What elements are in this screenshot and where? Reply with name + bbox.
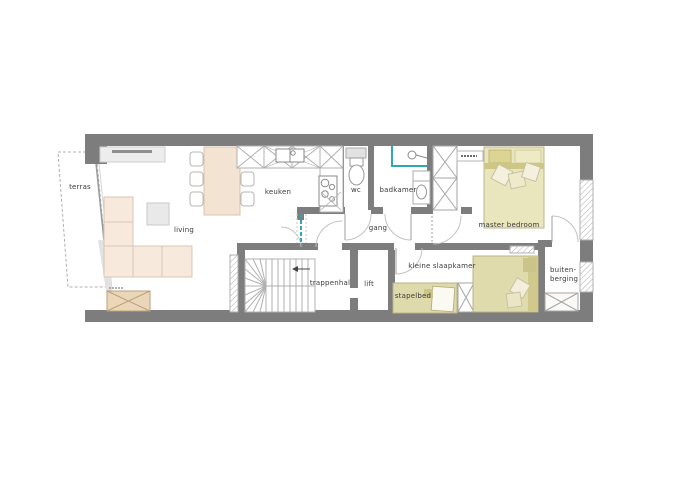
- pillow: [489, 150, 511, 163]
- room-label-buiten-berging: buiten- berging: [550, 266, 578, 285]
- door-trappenhal: [316, 221, 342, 247]
- coffee-table: [147, 203, 169, 225]
- crossed-cabinet: [107, 288, 150, 311]
- staircase: [245, 259, 315, 312]
- door-wc: [345, 214, 371, 240]
- pillow: [515, 150, 541, 163]
- room-label-buiten-berging-line1: buiten-: [550, 266, 578, 275]
- floorplan-drawing: [0, 0, 700, 500]
- wall-right-3: [580, 292, 593, 312]
- toilet-icon: [349, 165, 364, 185]
- room-label-living: living: [174, 226, 194, 234]
- tv: [112, 150, 152, 153]
- stove-icon: [319, 176, 337, 206]
- bathroom-fixtures: [392, 146, 430, 204]
- door-berging: [552, 216, 578, 242]
- radiator-small-bedroom: [510, 246, 534, 253]
- door-badkamer: [385, 214, 411, 240]
- room-label-buiten-berging-line2: berging: [550, 275, 578, 284]
- door-kleine-slaapkamer: [396, 248, 422, 274]
- shower-head-icon: [408, 151, 416, 159]
- room-label-lift: lift: [364, 280, 374, 288]
- dining-table: [204, 147, 240, 215]
- window-berging: [580, 262, 593, 292]
- room-label-stapelbed: stapelbed: [395, 292, 431, 300]
- room-label-terras: terras: [69, 183, 91, 191]
- room-label-master-bedroom: master bedroom: [478, 221, 539, 229]
- room-label-badkamer: badkamer: [380, 186, 417, 194]
- shower-screen: [392, 146, 427, 166]
- wc-fixtures: [346, 148, 366, 185]
- room-label-wc: wc: [351, 186, 361, 194]
- window-master-bedroom: [580, 180, 593, 240]
- wall-right-1: [580, 140, 593, 180]
- tv-sideboard: [100, 147, 165, 162]
- door-master-hall: [433, 216, 461, 244]
- room-label-gang: gang: [369, 224, 387, 232]
- cushion: [506, 292, 522, 308]
- wall-top: [85, 134, 593, 146]
- room-label-kleine-slaapkamer: kleine slaapkamer: [408, 262, 475, 270]
- room-label-keuken: keuken: [265, 188, 291, 196]
- master-bed: [457, 147, 544, 228]
- floorplan-page: terras living keuken wc badkamer gang ma…: [0, 0, 700, 500]
- room-label-trappenhal: trappenhal: [310, 279, 350, 287]
- radiator-living: [230, 255, 238, 312]
- right-windows: [580, 180, 593, 292]
- wall-right-2: [580, 240, 593, 262]
